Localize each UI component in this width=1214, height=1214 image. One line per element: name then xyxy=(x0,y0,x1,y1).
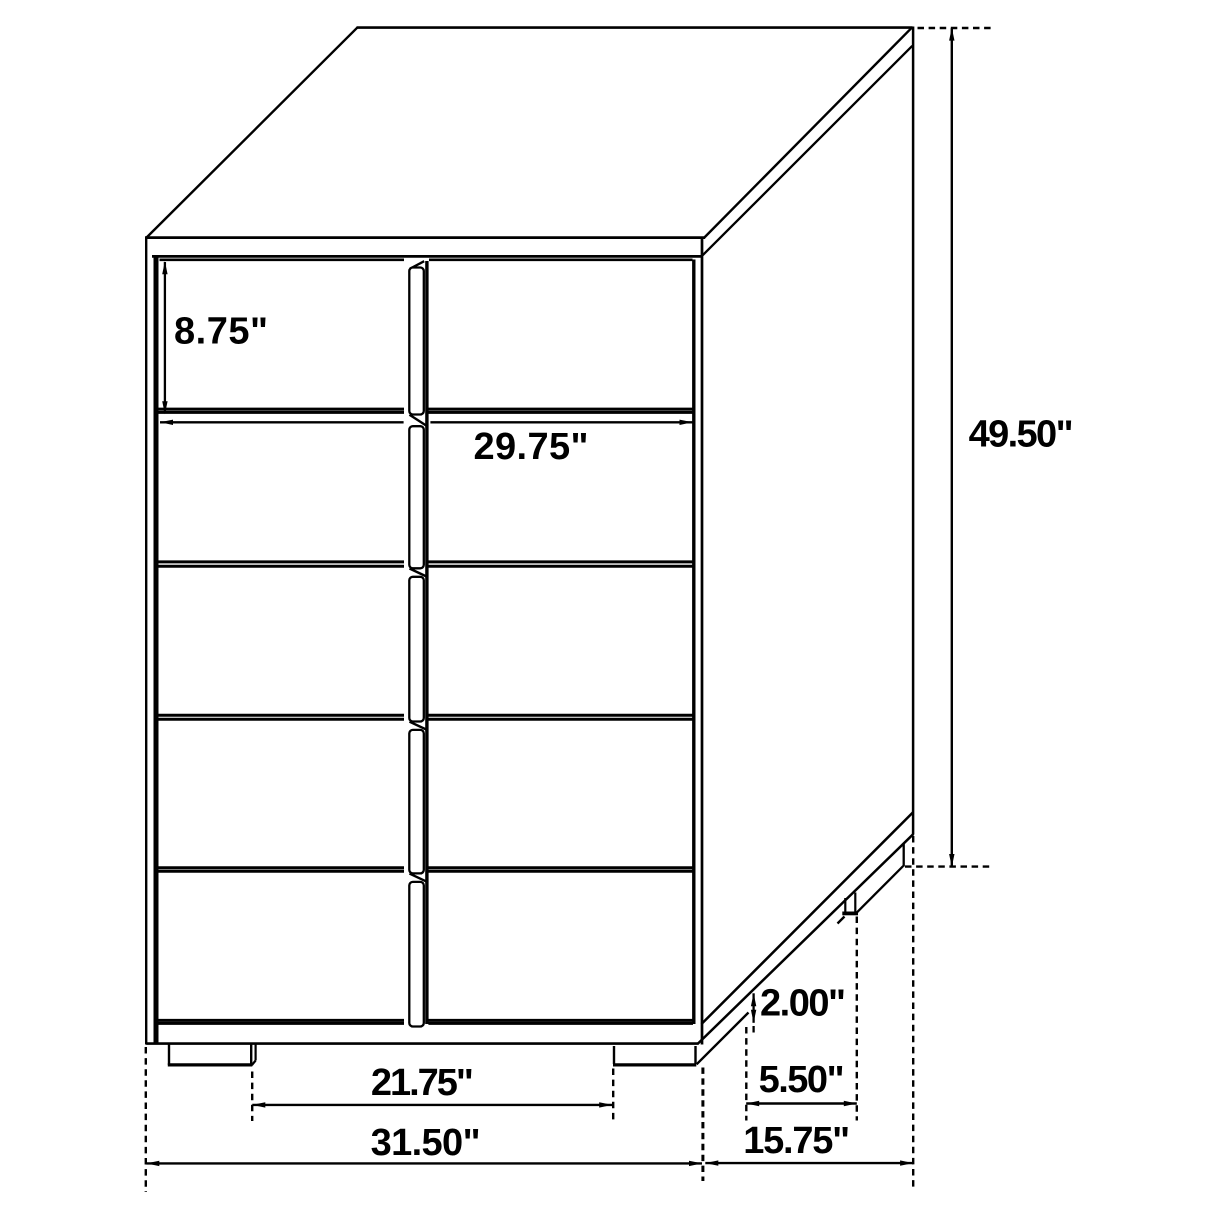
svg-text:49.50": 49.50" xyxy=(969,414,1074,456)
svg-text:21.75": 21.75" xyxy=(371,1062,474,1104)
svg-text:15.75": 15.75" xyxy=(743,1120,850,1162)
svg-text:29.75": 29.75" xyxy=(474,426,589,468)
svg-text:5.50": 5.50" xyxy=(759,1059,845,1101)
svg-text:2.00": 2.00" xyxy=(760,983,846,1025)
svg-text:8.75": 8.75" xyxy=(174,311,268,353)
svg-text:31.50": 31.50" xyxy=(371,1122,481,1164)
